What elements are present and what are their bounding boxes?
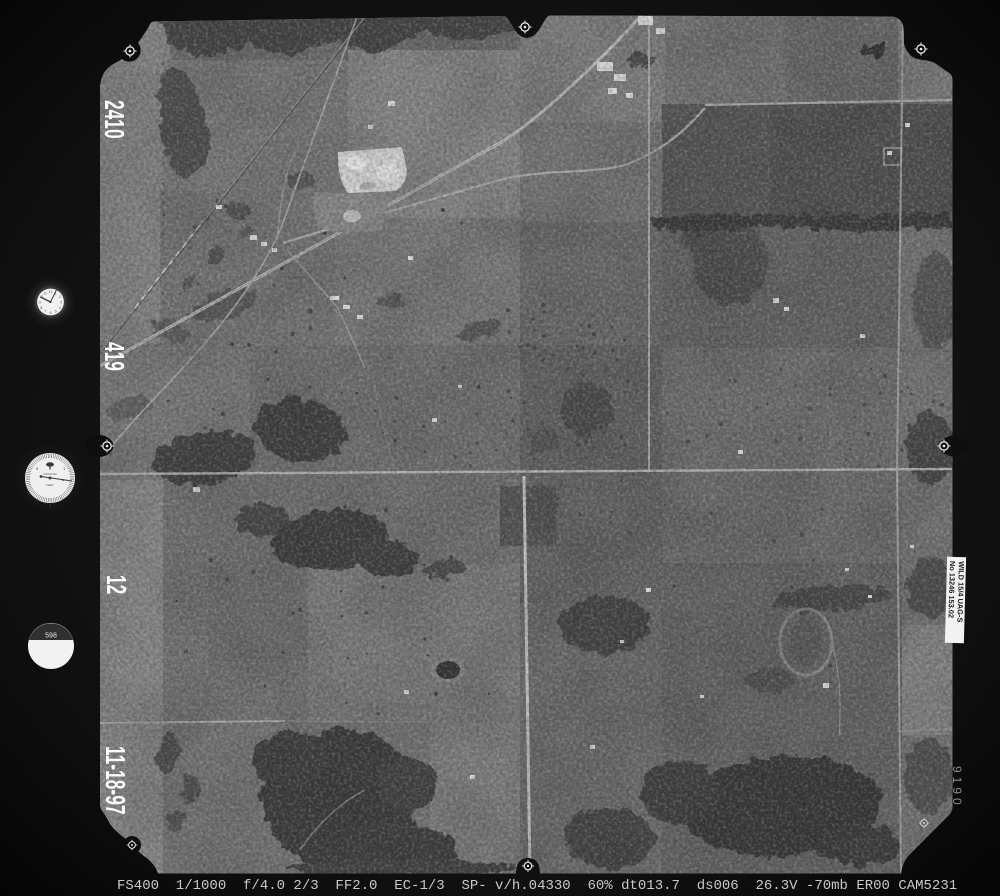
svg-text:2: 2 (59, 295, 61, 299)
svg-text:11-18-97: 11-18-97 (100, 746, 131, 815)
svg-text:7: 7 (44, 310, 46, 314)
svg-text:9: 9 (39, 301, 41, 305)
svg-text:2410: 2410 (99, 100, 130, 139)
svg-text:12: 12 (101, 575, 132, 594)
svg-text:FS400 1/1000 f/4.0 2/3 FF2.: FS400 1/1000 f/4.0 2/3 FF2.0 EC-1/3 SP- … (117, 878, 957, 894)
svg-text:GROUND: GROUND (43, 472, 57, 476)
svg-text:9190: 9190 (950, 766, 964, 809)
svg-text:419: 419 (99, 342, 130, 371)
svg-text:11: 11 (43, 291, 47, 295)
svg-text:FEET: FEET (46, 483, 54, 487)
svg-text:5: 5 (55, 310, 57, 314)
svg-text:No 13246 153.02: No 13246 153.02 (947, 561, 957, 618)
svg-text:598: 598 (45, 633, 57, 640)
svg-text:6: 6 (49, 311, 51, 315)
svg-text:12: 12 (48, 290, 52, 294)
svg-text:WILD 15/4 UAG-S: WILD 15/4 UAG-S (955, 561, 966, 622)
svg-text:8: 8 (40, 306, 42, 310)
svg-text:4: 4 (59, 306, 61, 310)
svg-text:3: 3 (60, 301, 62, 305)
